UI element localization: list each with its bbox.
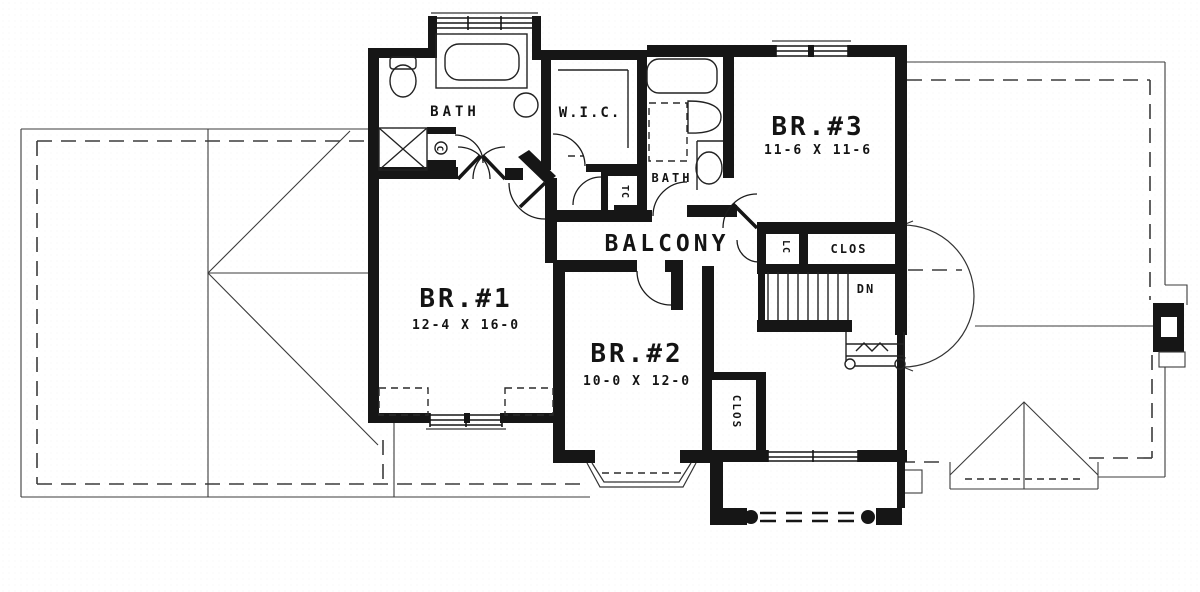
side-steps <box>903 470 922 493</box>
tub-bay-window <box>431 13 538 30</box>
lower-flight <box>846 332 904 362</box>
rail-end-left <box>845 359 855 369</box>
bedroom1-window <box>426 413 506 429</box>
floor-plan-sheet: BR.#1 12-4 X 16-0 BR.#2 10-0 X 12-0 BR.#… <box>0 0 1200 592</box>
balcony-label: BALCONY <box>605 231 730 257</box>
walls <box>368 16 907 525</box>
master-toilet-tank <box>390 57 416 69</box>
bay-window-bedroom2 <box>587 463 696 487</box>
bedroom3-label: BR.#3 <box>771 112 864 142</box>
hall-bath-door <box>653 182 687 216</box>
bedroom3-window <box>772 41 851 57</box>
porch-column-left <box>744 510 758 524</box>
toilet-partition <box>697 141 723 190</box>
hall-sink <box>688 101 721 133</box>
master-shower <box>379 128 427 170</box>
wic-door <box>553 134 585 166</box>
wic-label: W.I.C. <box>559 105 622 121</box>
tc-door <box>573 177 601 205</box>
porch-column-right <box>861 510 875 524</box>
bedroom1-dims: 12-4 X 16-0 <box>412 318 520 333</box>
cabinet-label: C <box>434 146 444 152</box>
master-sink <box>514 93 538 117</box>
bedroom3-dims: 11-6 X 11-6 <box>764 143 872 158</box>
hall-closet-label: CLOS <box>831 242 868 256</box>
bedroom2-label: BR.#2 <box>590 339 683 369</box>
curved-sweep-arc <box>903 221 974 371</box>
stair-treads <box>768 272 848 320</box>
toilet-compartment-label: TC <box>619 185 630 199</box>
right-roof-outline <box>907 62 1187 477</box>
floor-plan-drawing: BR.#1 12-4 X 16-0 BR.#2 10-0 X 12-0 BR.#… <box>0 0 1200 592</box>
master-bath-label: BATH <box>430 104 480 120</box>
hall-door <box>737 240 759 262</box>
front-gable-roof <box>900 402 1098 493</box>
porch <box>744 510 875 524</box>
bedroom2-closet-label: CLOS <box>730 395 743 430</box>
bedroom2-dims: 10-0 X 12-0 <box>583 374 691 389</box>
dormer-outlines <box>379 388 553 415</box>
hall-bath-label: BATH <box>652 171 693 185</box>
master-toilet <box>390 65 416 97</box>
hall-tub <box>647 59 717 93</box>
master-tub <box>445 44 519 80</box>
linen-closet-label: LC <box>780 240 791 254</box>
stairs-dn-label: DN <box>857 282 875 296</box>
bedroom1-label: BR.#1 <box>419 284 512 314</box>
hall-room-window <box>768 450 858 462</box>
bedroom2-door <box>637 271 671 305</box>
hall-toilet <box>696 152 722 184</box>
hall-shower <box>649 103 687 161</box>
